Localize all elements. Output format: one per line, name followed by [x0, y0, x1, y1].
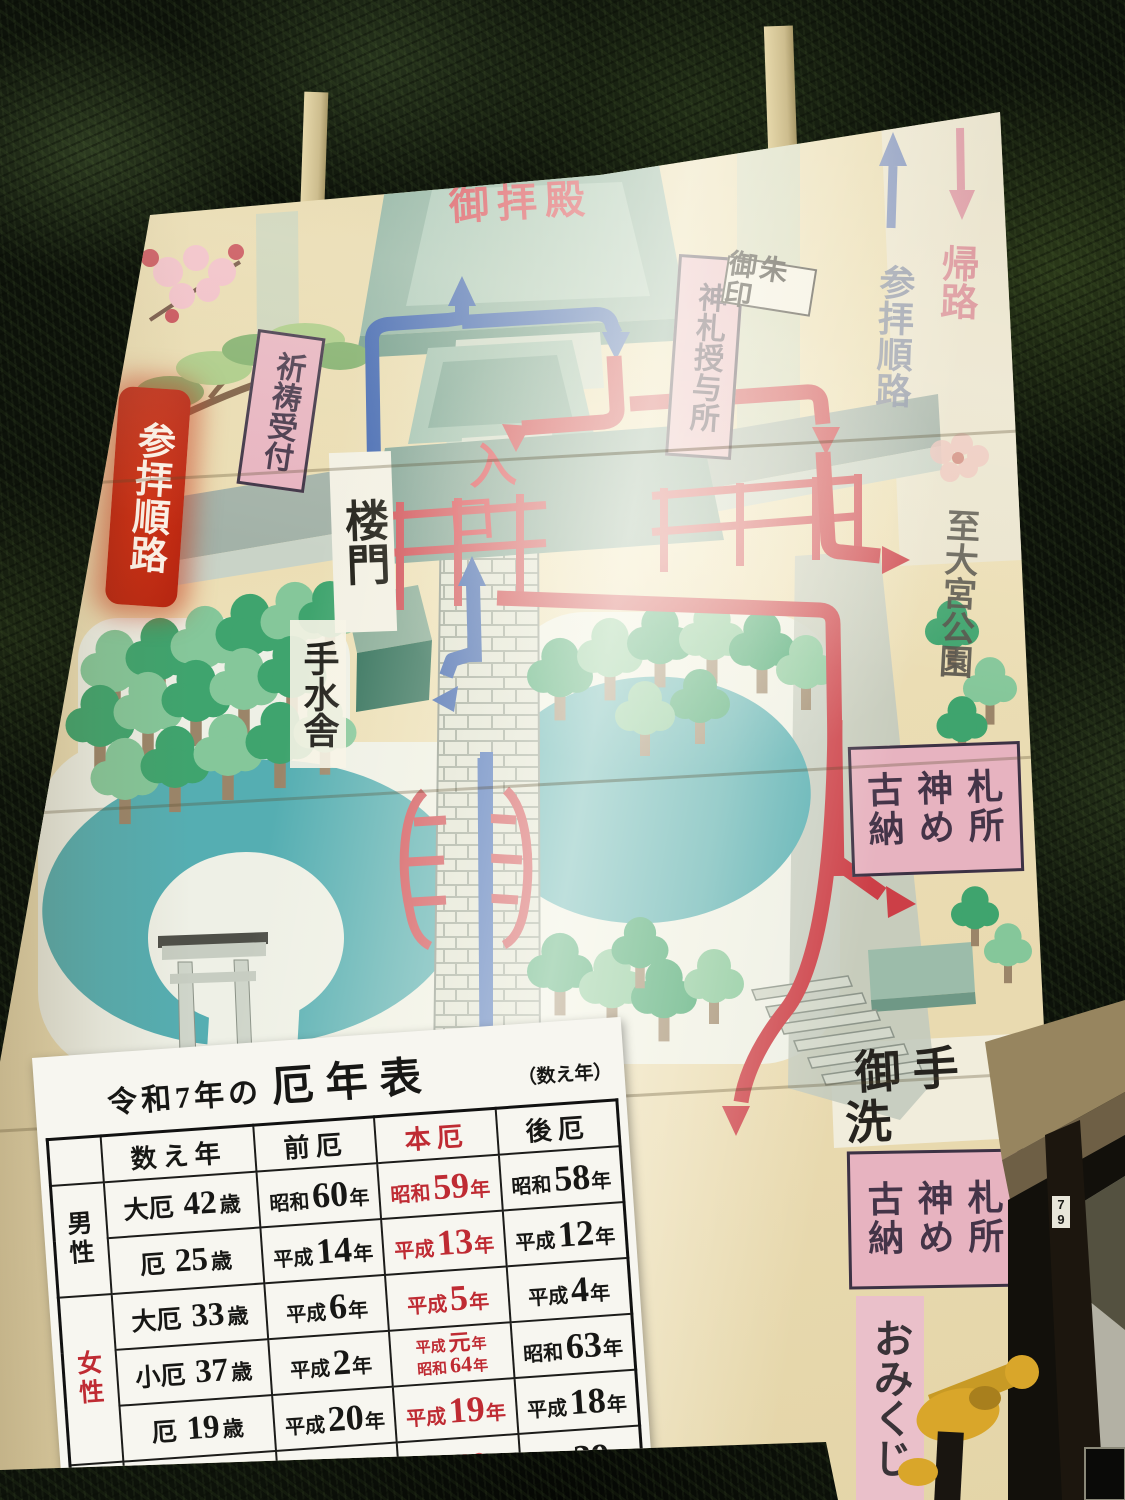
- ato-year-cell: 平成4年: [506, 1258, 631, 1322]
- to-omiya-park-label: 至大宮公園: [920, 479, 990, 708]
- mae-year-cell: 平成6年: [264, 1275, 389, 1339]
- plum-blossom-decoration: [141, 244, 244, 323]
- old-amulet-depository-label-bottom: 古神札 納め所: [847, 1148, 1025, 1289]
- hon-year-cell: 平成5年: [385, 1266, 510, 1330]
- mae-year-cell: 平成2年: [268, 1331, 393, 1395]
- ato-year-cell: 昭和58年: [499, 1146, 624, 1210]
- red-arrow-down2-icon: [722, 1106, 750, 1136]
- yakudoshi-poster: 令和7年の 厄年表 （数え年） 数え年 前厄 本厄 後厄 男性大厄42歳昭和60…: [32, 1017, 654, 1500]
- mae-year-cell: 平成20年: [272, 1387, 397, 1451]
- hon-year-cell: 平成元年昭和64年: [389, 1322, 514, 1386]
- photo-of-shrine-map-sign: 御拝殿 参拝順路 祈祷受付 神札授与所 御朱印 楼門 入口 手水舎 参拝順路 帰…: [0, 0, 1125, 1500]
- mae-year-cell: 平成14年: [261, 1219, 386, 1283]
- shrine-map-signboard: 御拝殿 参拝順路 祈祷受付 神札授与所 御朱印 楼門 入口 手水舎 参拝順路 帰…: [0, 0, 1125, 1500]
- worship-route-right-label: 参拝順路: [863, 237, 922, 435]
- poster-title-note: （数え年）: [517, 1057, 614, 1091]
- worship-route-banner: 参拝順路: [104, 386, 191, 608]
- header-honyaku: 本厄: [374, 1108, 498, 1163]
- return-route-label: 帰路: [926, 229, 984, 335]
- tower-gate-label: 楼門: [329, 451, 397, 633]
- header-empty: [47, 1136, 103, 1186]
- otearai-label: 御手洗: [842, 1058, 1017, 1133]
- blue-arrow-down-icon: [602, 332, 630, 360]
- building-near-otearai: [868, 942, 976, 1012]
- entrance-label: 入口: [444, 455, 604, 528]
- mae-year-cell: 昭和60年: [257, 1163, 382, 1227]
- hon-year-cell: 昭和59年: [378, 1155, 503, 1219]
- ato-year-cell: 平成12年: [502, 1202, 627, 1266]
- hon-year-cell: 平成19年: [393, 1378, 518, 1442]
- yakudoshi-table: 数え年 前厄 本厄 後厄 男性大厄42歳昭和60年昭和59年昭和58年厄25歳平…: [46, 1098, 646, 1500]
- hon-year-cell: 平成13年: [382, 1211, 507, 1275]
- ato-year-cell: 昭和63年: [510, 1314, 635, 1378]
- group-label: 男性: [50, 1182, 111, 1297]
- goshuin-label: 御朱印: [721, 255, 817, 316]
- ato-year-cell: 平成18年: [514, 1370, 639, 1434]
- poster-title-main: 厄年表: [269, 1042, 435, 1114]
- temizusha-label: 手水舎: [290, 620, 346, 768]
- header-maeyaku: 前厄: [253, 1117, 377, 1172]
- signboard-post-right: [764, 26, 797, 153]
- poster-title-prefix: 令和7年の: [106, 1067, 264, 1122]
- omikuji-label: おみくじ: [856, 1296, 924, 1500]
- old-amulet-line2: 納め所: [854, 806, 1019, 851]
